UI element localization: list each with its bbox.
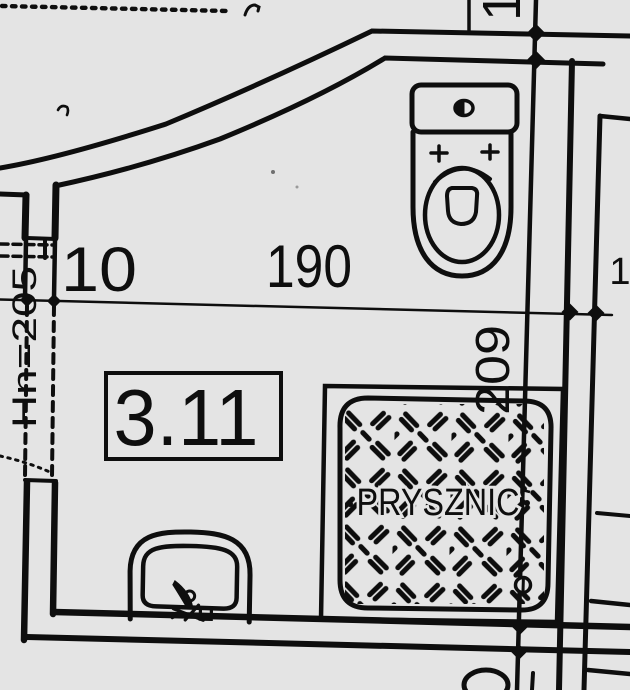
svg-text:10: 10	[61, 235, 137, 305]
svg-text:3.11: 3.11	[114, 373, 259, 462]
svg-text:190: 190	[266, 233, 352, 300]
svg-text:1: 1	[609, 251, 630, 293]
svg-text:1: 1	[472, 0, 532, 21]
svg-text:Hn=205: Hn=205	[6, 266, 44, 428]
svg-text:209: 209	[467, 325, 520, 415]
svg-text:PRYSZNIC: PRYSZNIC	[357, 482, 520, 524]
